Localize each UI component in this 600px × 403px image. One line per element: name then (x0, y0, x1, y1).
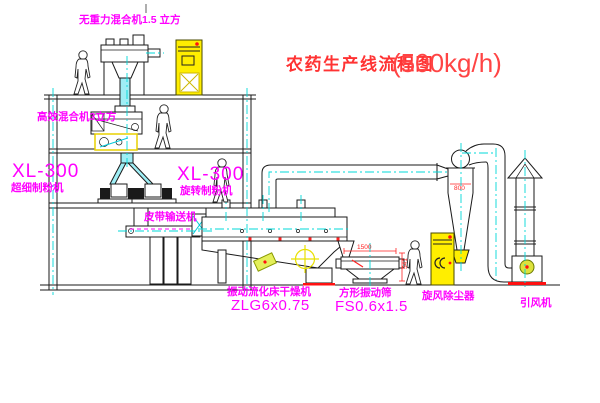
label-mill-right: 旋转制粉机 (179, 184, 233, 197)
pulverizer-right (132, 184, 176, 203)
label-mixer-top: 无重力混合机1.5 立方 (78, 13, 181, 26)
label-cyclone: 旋风除尘器 (421, 289, 475, 302)
discharge-bins (150, 237, 191, 284)
discharge-roller (254, 253, 277, 271)
worker-figure (74, 51, 90, 94)
cad-flow-diagram: 农药生产线流程图 (500kg/h) 无重力混合机1.5 立方 高效混合机3立方… (0, 0, 600, 403)
label-mill-left-model: XL-300 (12, 161, 79, 182)
label-belt-conveyor: 皮带输送机 (143, 210, 197, 223)
dim-sieve-width: 1500 (357, 244, 372, 251)
dim-cyclone: 800 (454, 185, 465, 192)
worker-figure (155, 105, 171, 148)
dim-sieve-height: 541 (402, 258, 409, 269)
label-fan: 引风机 (520, 296, 552, 309)
induced-draft-fan (508, 256, 546, 285)
control-cabinet-ground (431, 233, 454, 285)
drawing-surface: 农药生产线流程图 (500kg/h) 无重力混合机1.5 立方 高效混合机3立方… (0, 0, 600, 403)
y-branch-pipe (110, 153, 153, 184)
drawing-title: 农药生产线流程图 (500kg/h) (285, 48, 502, 78)
exhaust-duct (262, 163, 448, 208)
label-sieve-model: FS0.6x1.5 (335, 298, 408, 315)
control-cabinet-top (176, 40, 202, 95)
fluid-bed-dryer (202, 200, 354, 286)
label-mixer-2f: 高效混合机3立方 (37, 110, 117, 123)
label-mill-left: 超细制粉机 (10, 181, 64, 194)
fan-inlet-duct (466, 144, 514, 282)
label-mill-right-model: XL-300 (177, 164, 244, 185)
label-dryer-model: ZLG6x0.75 (231, 297, 310, 314)
title-capacity: (500kg/h) (392, 48, 502, 78)
